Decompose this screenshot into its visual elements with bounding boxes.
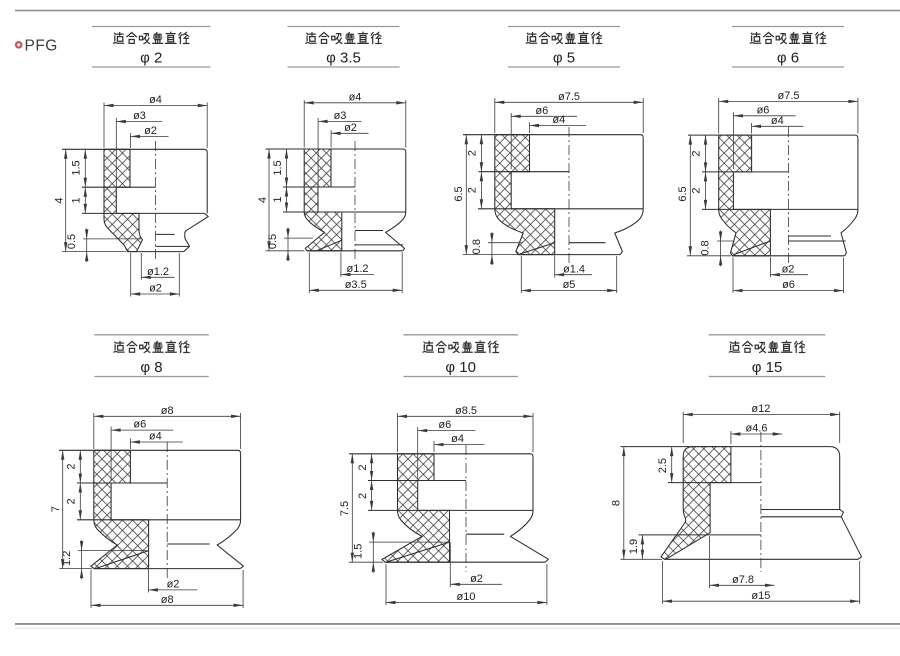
svg-text:ø4: ø4	[349, 91, 362, 103]
svg-text:φ 2: φ 2	[140, 50, 162, 67]
svg-text:ø15: ø15	[751, 590, 770, 602]
svg-text:0.8: 0.8	[700, 240, 712, 255]
svg-text:2: 2	[467, 150, 479, 156]
svg-text:ø7.8: ø7.8	[732, 574, 754, 586]
svg-text:6.5: 6.5	[453, 186, 465, 201]
svg-text:2: 2	[691, 188, 703, 194]
svg-text:φ 8: φ 8	[140, 359, 162, 376]
svg-text:ø4: ø4	[552, 114, 565, 126]
svg-text:1.5: 1.5	[353, 544, 365, 559]
svg-text:ø4: ø4	[451, 433, 464, 445]
svg-text:2: 2	[66, 464, 78, 470]
svg-text:φ 6: φ 6	[777, 50, 799, 67]
svg-text:4: 4	[257, 197, 269, 203]
svg-text:ø6: ø6	[782, 279, 795, 291]
svg-text:2: 2	[357, 493, 369, 499]
svg-text:ø8: ø8	[161, 594, 174, 606]
svg-text:2.5: 2.5	[657, 458, 669, 473]
svg-text:ø2: ø2	[149, 283, 162, 295]
svg-text:ø3: ø3	[334, 110, 347, 122]
svg-text:ø7.5: ø7.5	[777, 90, 799, 102]
svg-text:ø8: ø8	[161, 405, 174, 417]
svg-text:φ 3.5: φ 3.5	[326, 50, 361, 67]
svg-text:6.5: 6.5	[677, 186, 689, 201]
svg-text:7: 7	[50, 506, 62, 512]
svg-text:ø4: ø4	[149, 431, 162, 443]
svg-text:ø5: ø5	[563, 279, 576, 291]
svg-text:ø7.5: ø7.5	[558, 91, 580, 103]
svg-text:ø6: ø6	[438, 419, 451, 431]
svg-text:φ 15: φ 15	[752, 359, 783, 376]
svg-text:ø3.5: ø3.5	[345, 279, 367, 291]
svg-text:7.5: 7.5	[339, 501, 351, 516]
svg-text:ø12: ø12	[751, 403, 770, 415]
svg-text:ø8.5: ø8.5	[455, 405, 477, 417]
svg-text:1.9: 1.9	[628, 539, 640, 554]
svg-text:ø4: ø4	[149, 94, 162, 106]
svg-text:ø4.6: ø4.6	[745, 423, 767, 435]
svg-text:ø2: ø2	[344, 122, 357, 134]
svg-text:2: 2	[66, 498, 78, 504]
svg-text:0.8: 0.8	[471, 239, 483, 254]
svg-text:ø2: ø2	[470, 573, 483, 585]
svg-text:0.5: 0.5	[267, 234, 279, 249]
svg-text:ø6: ø6	[535, 105, 548, 117]
svg-text:ø1.2: ø1.2	[147, 266, 169, 278]
svg-text:ø2: ø2	[167, 579, 180, 591]
svg-text:φ 5: φ 5	[553, 50, 575, 67]
svg-text:φ 10: φ 10	[445, 359, 476, 376]
svg-text:2: 2	[691, 150, 703, 156]
svg-text:1.5: 1.5	[272, 160, 284, 175]
svg-text:ø6: ø6	[757, 104, 770, 116]
svg-text:0.5: 0.5	[66, 234, 78, 249]
svg-text:2: 2	[357, 465, 369, 471]
svg-text:4: 4	[54, 197, 66, 203]
svg-text:ø1.2: ø1.2	[346, 263, 368, 275]
svg-text:ø3: ø3	[133, 110, 146, 122]
svg-text:ø2: ø2	[782, 263, 795, 275]
svg-text:ø2: ø2	[144, 125, 157, 137]
svg-text:1: 1	[71, 197, 83, 203]
svg-text:8: 8	[611, 500, 623, 506]
svg-text:ø6: ø6	[133, 419, 146, 431]
svg-text:1.2: 1.2	[61, 551, 73, 566]
svg-text:1: 1	[272, 196, 284, 202]
svg-text:ø4: ø4	[771, 115, 784, 127]
svg-text:ø10: ø10	[457, 591, 476, 603]
svg-text:PFG: PFG	[25, 38, 58, 55]
svg-text:2: 2	[467, 187, 479, 193]
svg-text:ø1.4: ø1.4	[563, 263, 585, 275]
svg-text:1.5: 1.5	[71, 160, 83, 175]
